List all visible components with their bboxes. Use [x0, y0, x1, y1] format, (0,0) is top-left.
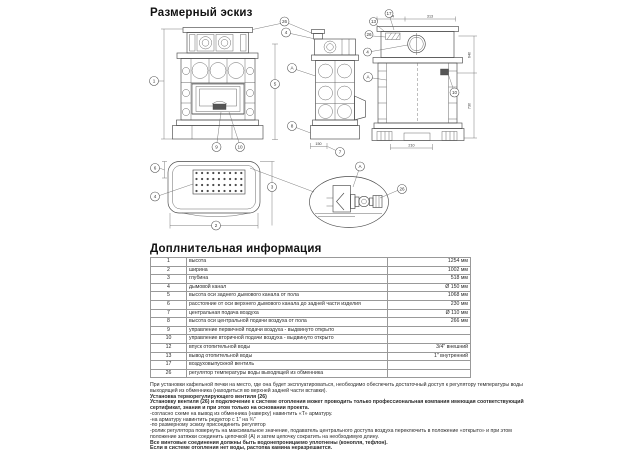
row-number: 2 — [151, 266, 187, 275]
callout-a-rear: А — [364, 73, 387, 82]
row-value: 1254 мм — [388, 258, 471, 267]
row-label: управление первичной подачи воздуха - вы… — [187, 326, 388, 335]
row-number: 17 — [151, 361, 187, 370]
callout-10: 10 — [229, 112, 245, 152]
svg-text:10: 10 — [237, 145, 243, 150]
callout-4-plan: 4 — [151, 184, 194, 201]
svg-text:4: 4 — [285, 30, 288, 35]
callout-1: 1 — [150, 77, 165, 86]
svg-text:4: 4 — [366, 50, 369, 55]
table-row: 6 расстояние от оси верхнего дымового ка… — [151, 300, 471, 309]
row-number: 12 — [151, 343, 187, 352]
table-row: 10 управление вторичной подачи воздуха -… — [151, 335, 471, 344]
technical-drawing: 1 9 10 26 4 — [0, 0, 624, 242]
row-value: 1" внутренний — [388, 352, 471, 361]
svg-text:10: 10 — [452, 90, 458, 95]
row-number: 7 — [151, 309, 187, 318]
page: { "doc": { "drawing_title": "Размерный э… — [0, 0, 624, 460]
svg-text:2: 2 — [215, 223, 218, 228]
table-row: 5 высота оси заднего дымового канала от … — [151, 292, 471, 301]
svg-text:3: 3 — [271, 185, 274, 190]
row-label: вывод отопительной воды — [187, 352, 388, 361]
callout-10-rear: 10 — [449, 75, 460, 97]
svg-text:26: 26 — [282, 19, 288, 24]
row-label: воздуховыпускной вентиль — [187, 361, 388, 370]
svg-text:5: 5 — [274, 82, 277, 87]
callout-2: 2 — [212, 221, 221, 230]
table-row: 13 вывод отопительной воды 1" внутренний — [151, 352, 471, 361]
plan-view: 6 4 2 3 — [151, 162, 315, 231]
callout-3: 3 — [268, 183, 277, 192]
table-row: 26 регулятор температуры воды выходящей … — [151, 369, 471, 378]
row-number: 4 — [151, 283, 187, 292]
svg-text:8: 8 — [291, 124, 294, 129]
callout-8: 8 — [288, 122, 311, 134]
row-number: 1 — [151, 258, 187, 267]
row-value: 518 мм — [388, 275, 471, 284]
row-label: дымовой канал — [187, 283, 388, 292]
row-value: 1002 мм — [388, 266, 471, 275]
table-row: 17 воздуховыпускной вентиль — [151, 361, 471, 370]
row-label: глубина — [187, 275, 388, 284]
callout-a-detail: А — [353, 162, 365, 187]
table-row: 12 впуск отопительной воды 3/4" внешний — [151, 343, 471, 352]
row-label: центральная подача воздуха — [187, 309, 388, 318]
row-value: 3/4" внешний — [388, 343, 471, 352]
info-section-title: Доплнительная информация — [150, 243, 322, 255]
grate-grid — [195, 172, 242, 192]
row-label: расстояние от оси верхнего дымового кана… — [187, 300, 388, 309]
dim-rear-bottom: 210 — [408, 144, 414, 148]
row-number: 10 — [151, 335, 187, 344]
spec-table-body: 1 высота 1254 мм 2 ширина 1002 мм 3 глуб… — [151, 258, 471, 378]
row-label: регулятор температуры воды выходящей из … — [187, 369, 388, 378]
svg-text:17: 17 — [386, 11, 392, 16]
callout-4-top: 4 — [282, 28, 314, 39]
dim-rear-top-right: 313 — [427, 15, 433, 19]
row-number: 9 — [151, 326, 187, 335]
table-row: 4 дымовой канал Ø 150 мм — [151, 283, 471, 292]
table-row: 7 центральная подача воздуха Ø 110 мм — [151, 309, 471, 318]
svg-text:26: 26 — [399, 187, 405, 192]
rear-view: 204 313 210 640 730 — [364, 10, 478, 151]
row-value — [388, 369, 471, 378]
callout-7: 7 — [328, 147, 345, 157]
row-value — [388, 335, 471, 344]
front-view: 1 9 10 — [150, 28, 264, 152]
spec-table: 1 высота 1254 мм 2 ширина 1002 мм 3 глуб… — [150, 257, 471, 378]
svg-text:4: 4 — [154, 194, 157, 199]
row-label: управление вторичной подачи воздуха - вы… — [187, 335, 388, 344]
row-label: высота — [187, 258, 388, 267]
callout-4-rear: 4 — [364, 45, 408, 56]
row-number: 8 — [151, 318, 187, 327]
dim-rear-right-lower: 730 — [468, 103, 472, 109]
row-number: 3 — [151, 275, 187, 284]
row-label: впуск отопительной воды — [187, 343, 388, 352]
row-value — [388, 326, 471, 335]
table-row: 9 управление первичной подачи воздуха - … — [151, 326, 471, 335]
table-row: 8 высота оси центральной подачи воздуха … — [151, 318, 471, 327]
callout-a-side: А — [288, 64, 316, 77]
row-label: ширина — [187, 266, 388, 275]
row-label: высота оси заднего дымового канала от по… — [187, 292, 388, 301]
row-value — [388, 361, 471, 370]
detail-view: А 26 — [310, 162, 407, 228]
callout-26-detail: 26 — [380, 185, 407, 199]
note-line: Если в системе отопления нет воды, расто… — [150, 446, 482, 452]
svg-text:26: 26 — [366, 32, 372, 37]
dim-rear-right-upper: 640 — [468, 52, 472, 58]
row-label: высота оси центральной подачи воздуха от… — [187, 318, 388, 327]
callout-17: 17 — [385, 10, 394, 31]
installation-notes: При установки кафельной печки на место, … — [150, 383, 482, 452]
row-number: 26 — [151, 369, 187, 378]
svg-text:7: 7 — [339, 150, 342, 155]
svg-text:1: 1 — [153, 79, 156, 84]
callout-5: 5 — [271, 80, 280, 89]
callout-6: 6 — [151, 164, 165, 173]
table-row: 2 ширина 1002 мм — [151, 266, 471, 275]
table-row: 3 глубина 518 мм — [151, 275, 471, 284]
row-value: Ø 110 мм — [388, 309, 471, 318]
table-row: 1 высота 1254 мм — [151, 258, 471, 267]
dim-side-bottom: 150 — [315, 142, 321, 146]
row-number: 5 — [151, 292, 187, 301]
side-view: 150 5 А 8 7 — [271, 30, 366, 157]
svg-text:13: 13 — [371, 19, 377, 24]
row-number: 13 — [151, 352, 187, 361]
row-value: 266 мм — [388, 318, 471, 327]
callout-9: 9 — [212, 112, 221, 152]
row-number: 6 — [151, 300, 187, 309]
svg-text:6: 6 — [154, 166, 157, 171]
svg-text:9: 9 — [215, 145, 218, 150]
row-value: Ø 150 мм — [388, 283, 471, 292]
row-value: 230 мм — [388, 300, 471, 309]
row-value: 1068 мм — [388, 292, 471, 301]
